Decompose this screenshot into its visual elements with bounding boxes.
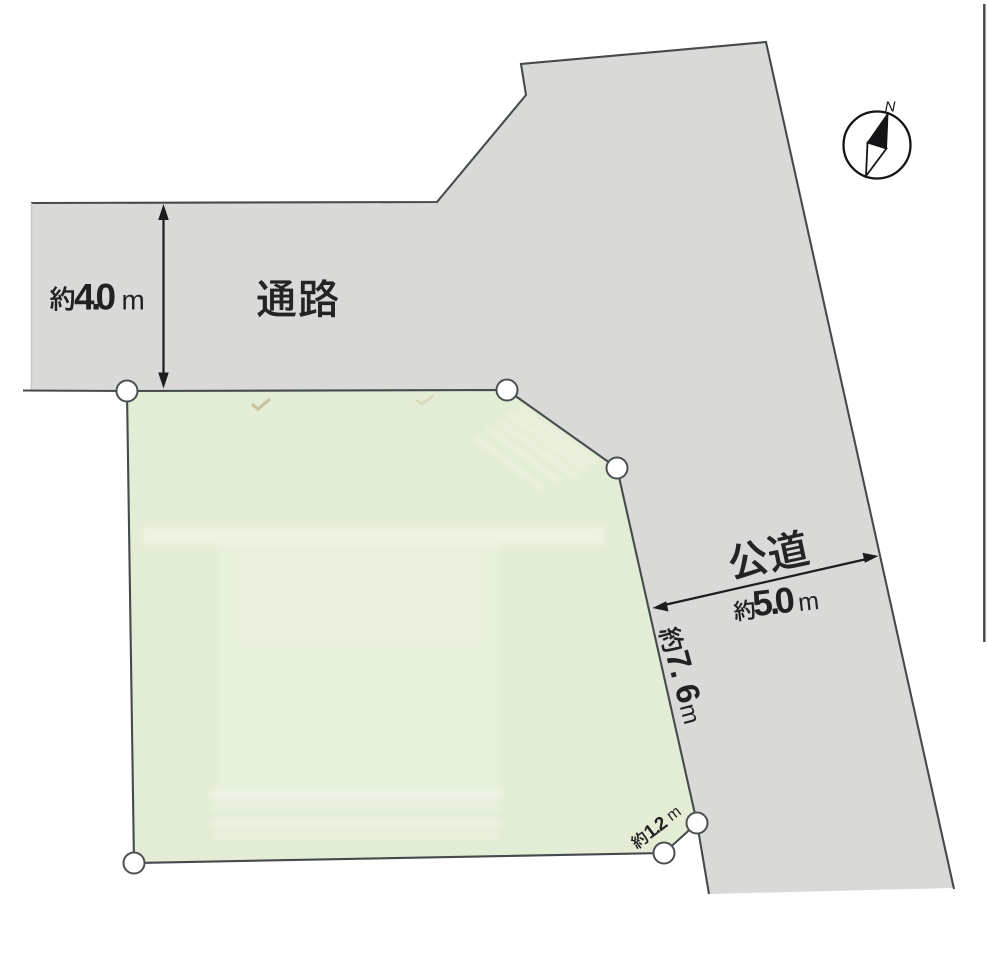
svg-text:N: N (885, 99, 896, 116)
svg-text:0: 0 (96, 277, 117, 318)
svg-text:m: m (797, 587, 821, 617)
svg-text:m: m (122, 285, 145, 316)
